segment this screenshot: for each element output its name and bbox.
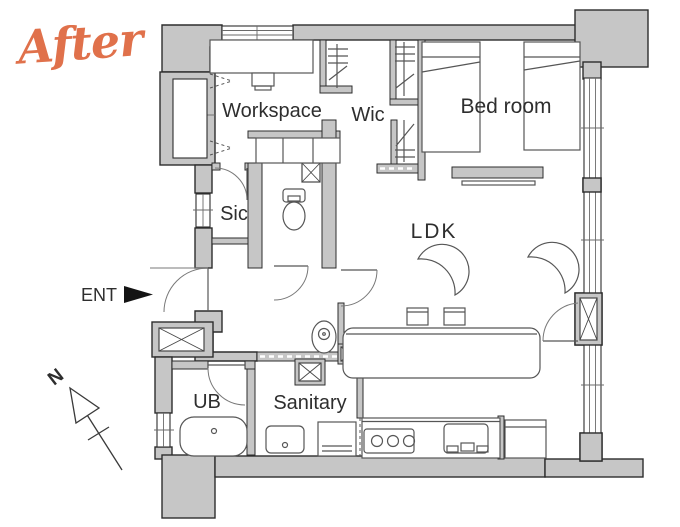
washing-machine-icon	[312, 321, 336, 353]
gas-stove-icon	[364, 429, 415, 453]
window-top	[222, 26, 293, 40]
window-ub	[154, 413, 174, 447]
lounge-chair-1-icon	[418, 244, 469, 295]
kitchen-sink-icon	[444, 424, 488, 453]
laundry-pan-icon	[318, 422, 356, 456]
sic-door-swing	[215, 168, 247, 200]
lounge-chair-2-icon	[528, 242, 579, 293]
label-bedroom: Bed room	[460, 95, 551, 118]
label-ub: UB	[193, 391, 221, 413]
pipe-shaft-storage-icon	[302, 163, 320, 182]
north-arrow: N	[44, 365, 122, 470]
floor-plan-page: Workspace Wic Bed room Sic LDK UB Sanita…	[0, 0, 680, 527]
tv-board-icon	[452, 167, 543, 185]
desk-icon	[210, 40, 313, 73]
label-sic: Sic	[220, 203, 248, 225]
entrance-marker: ENT	[81, 285, 153, 305]
workspace-closet-niche	[173, 79, 207, 158]
toilet-icon	[283, 189, 305, 230]
page-title: After	[12, 12, 149, 75]
label-entrance: ENT	[81, 285, 117, 305]
bathtub-icon	[180, 417, 247, 456]
ldk-door-swing	[341, 270, 377, 306]
balcony-door-swing	[543, 303, 578, 341]
window-sic	[193, 194, 213, 227]
window-right	[581, 78, 604, 433]
desk-chair-icon	[252, 73, 274, 90]
meter-box-icon	[159, 328, 204, 351]
label-sanitary: Sanitary	[273, 392, 346, 414]
entrance-arrow-icon	[124, 286, 153, 303]
storage-cabinet-icon	[256, 138, 340, 163]
refrigerator-icon	[505, 420, 546, 458]
north-arrow-head-icon	[70, 388, 99, 423]
dining-counter-icon	[343, 328, 540, 378]
entrance-door-swing	[150, 268, 208, 312]
floor-plan: Workspace Wic Bed room Sic LDK UB Sanita…	[0, 0, 680, 527]
label-workspace: Workspace	[222, 100, 322, 122]
wc-door-swing	[274, 266, 308, 300]
washbasin-icon	[266, 426, 304, 453]
label-north: N	[44, 365, 68, 390]
pipe-shaft-sanitary-icon	[295, 359, 325, 385]
label-wic: Wic	[351, 104, 384, 126]
label-ldk: LDK	[411, 220, 458, 243]
counter-stool-icons	[407, 308, 465, 325]
